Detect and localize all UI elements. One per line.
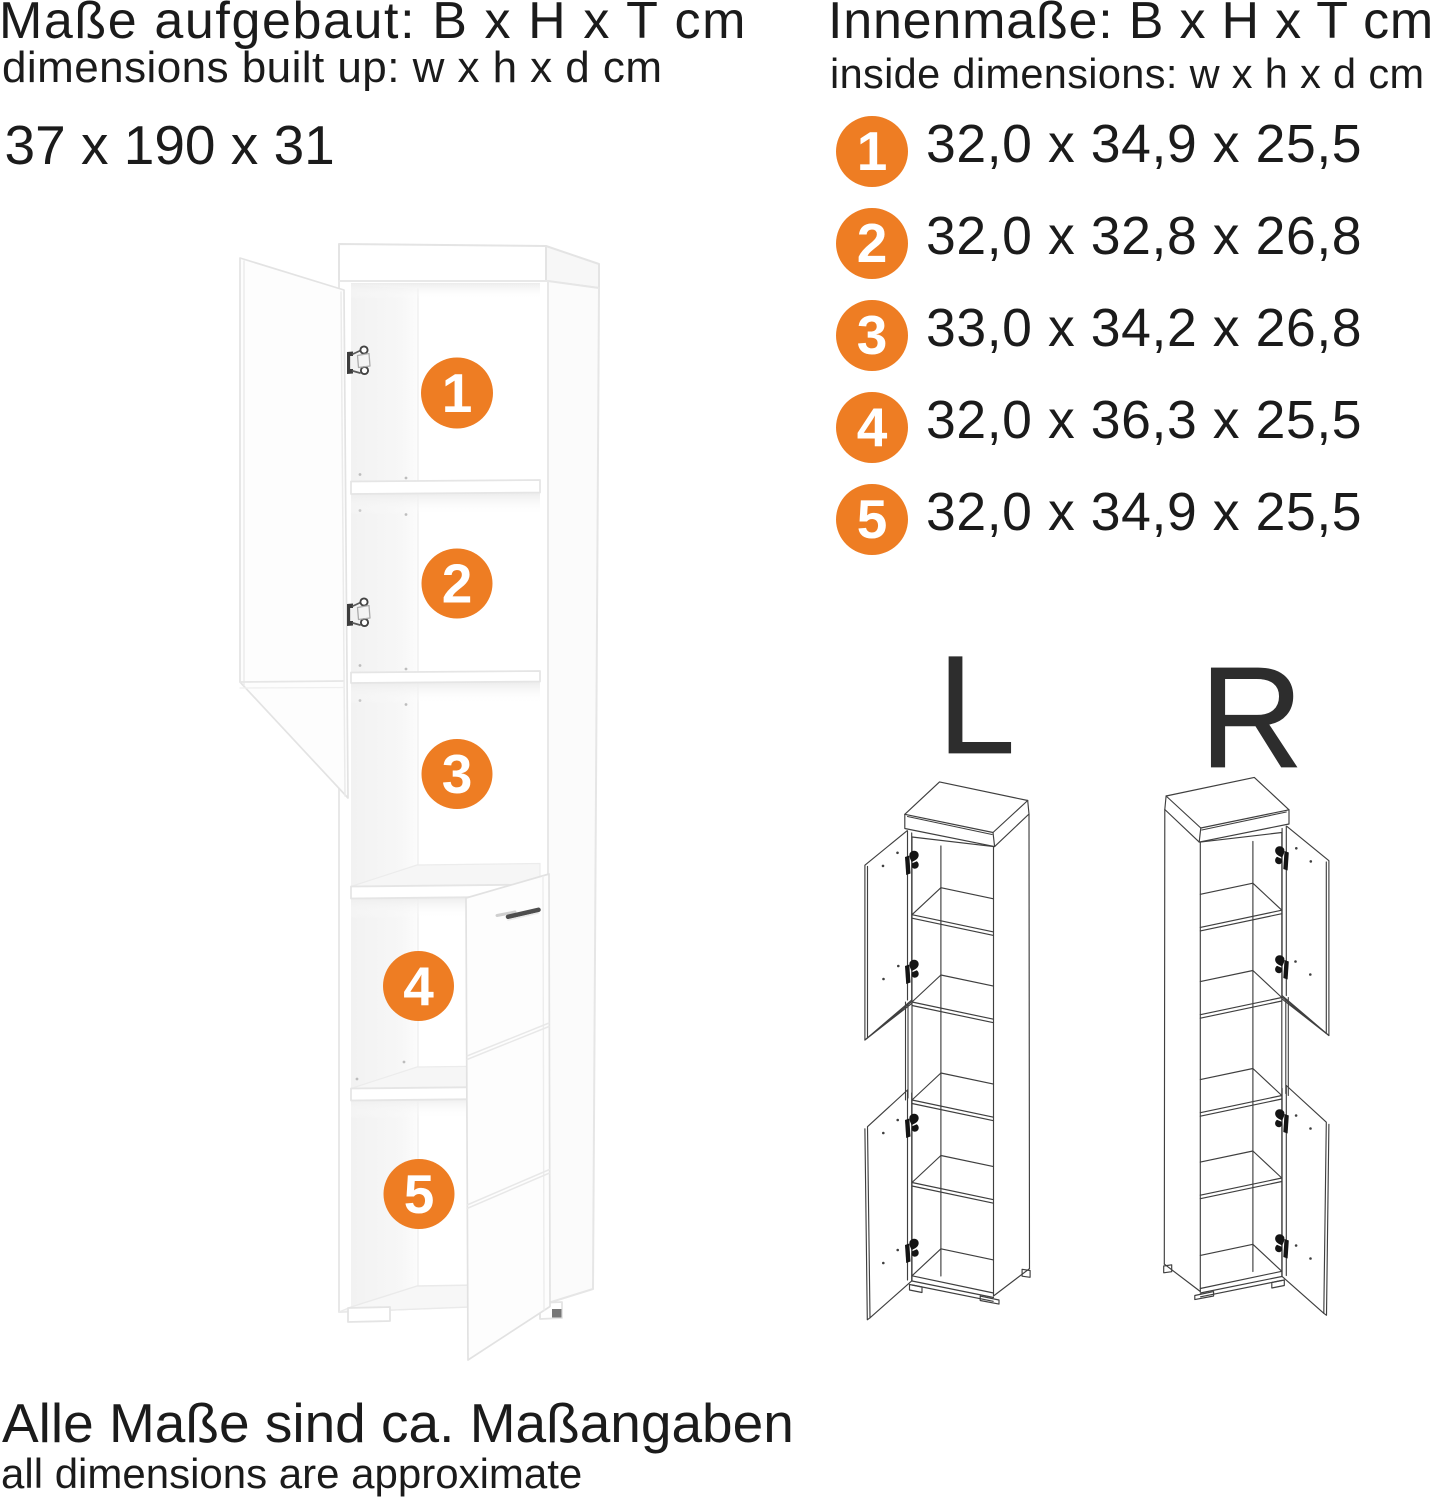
svg-text:2: 2 xyxy=(442,552,473,614)
svg-text:1: 1 xyxy=(442,362,473,424)
svg-text:5: 5 xyxy=(404,1163,435,1225)
svg-text:4: 4 xyxy=(403,955,434,1017)
svg-text:3: 3 xyxy=(442,743,473,805)
